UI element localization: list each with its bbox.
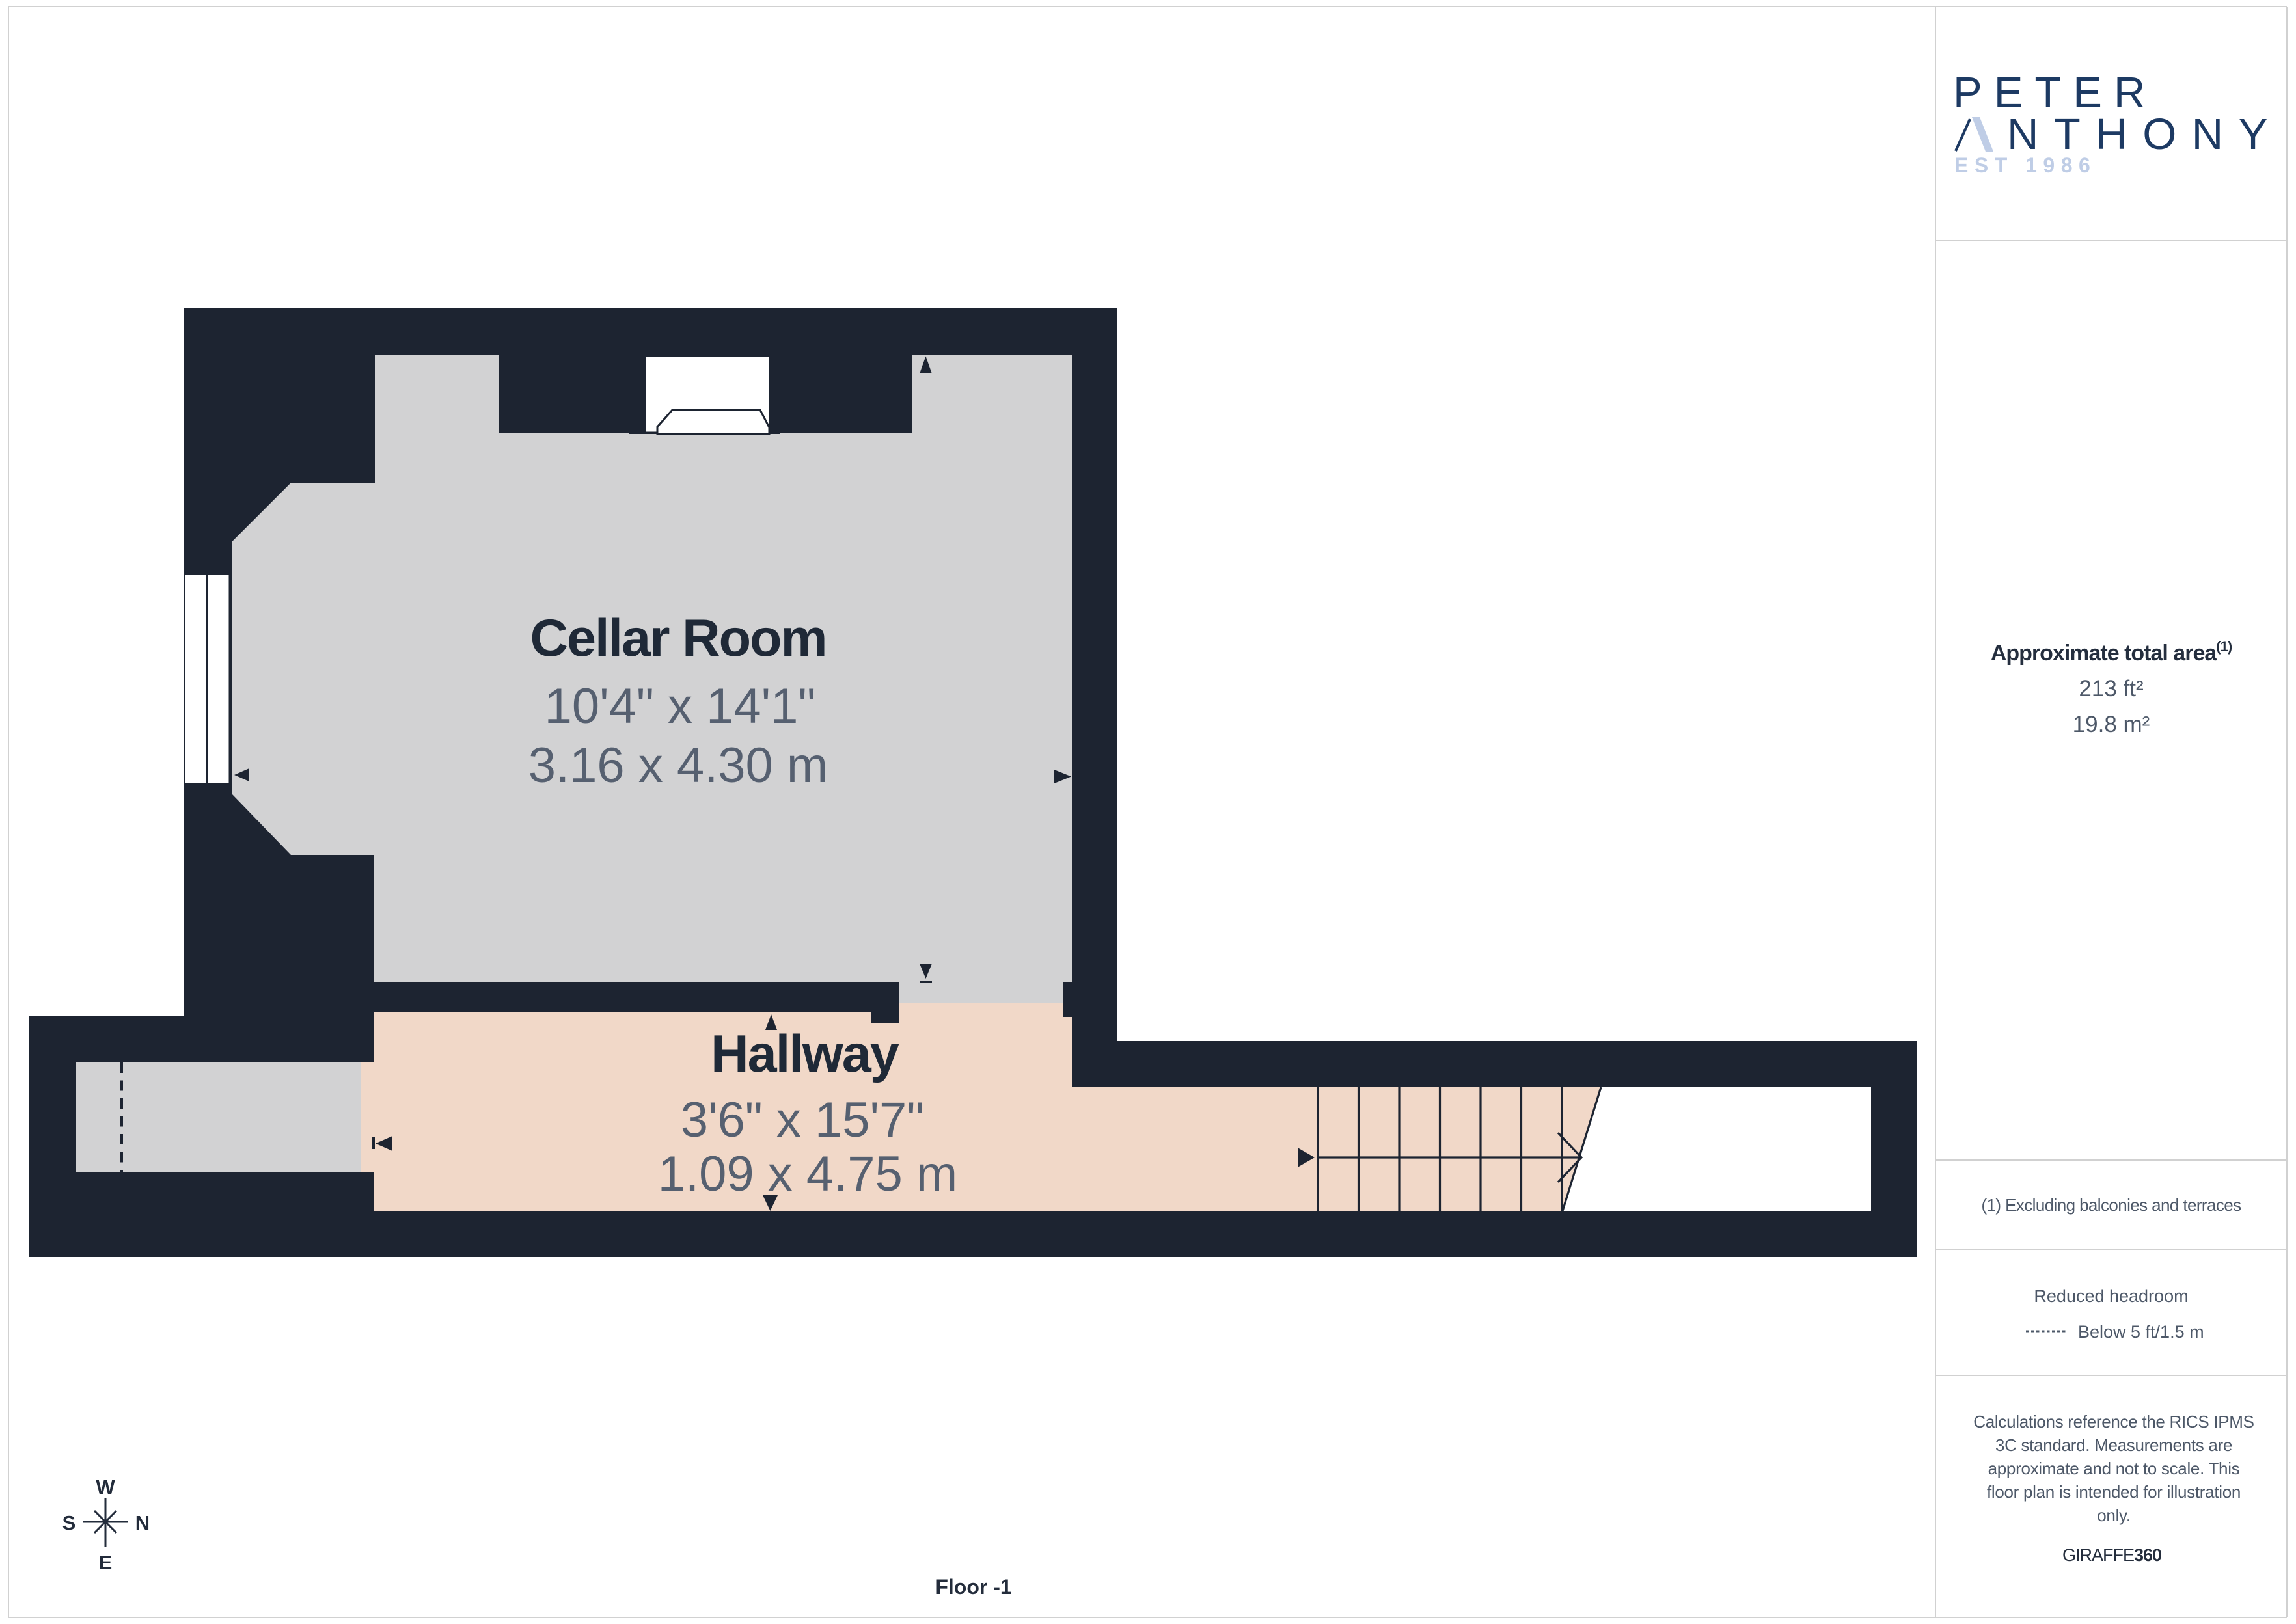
svg-text:S: S: [62, 1511, 76, 1534]
svg-text:W: W: [96, 1476, 115, 1498]
svg-text:E: E: [99, 1551, 113, 1574]
svg-text:N: N: [135, 1511, 150, 1534]
